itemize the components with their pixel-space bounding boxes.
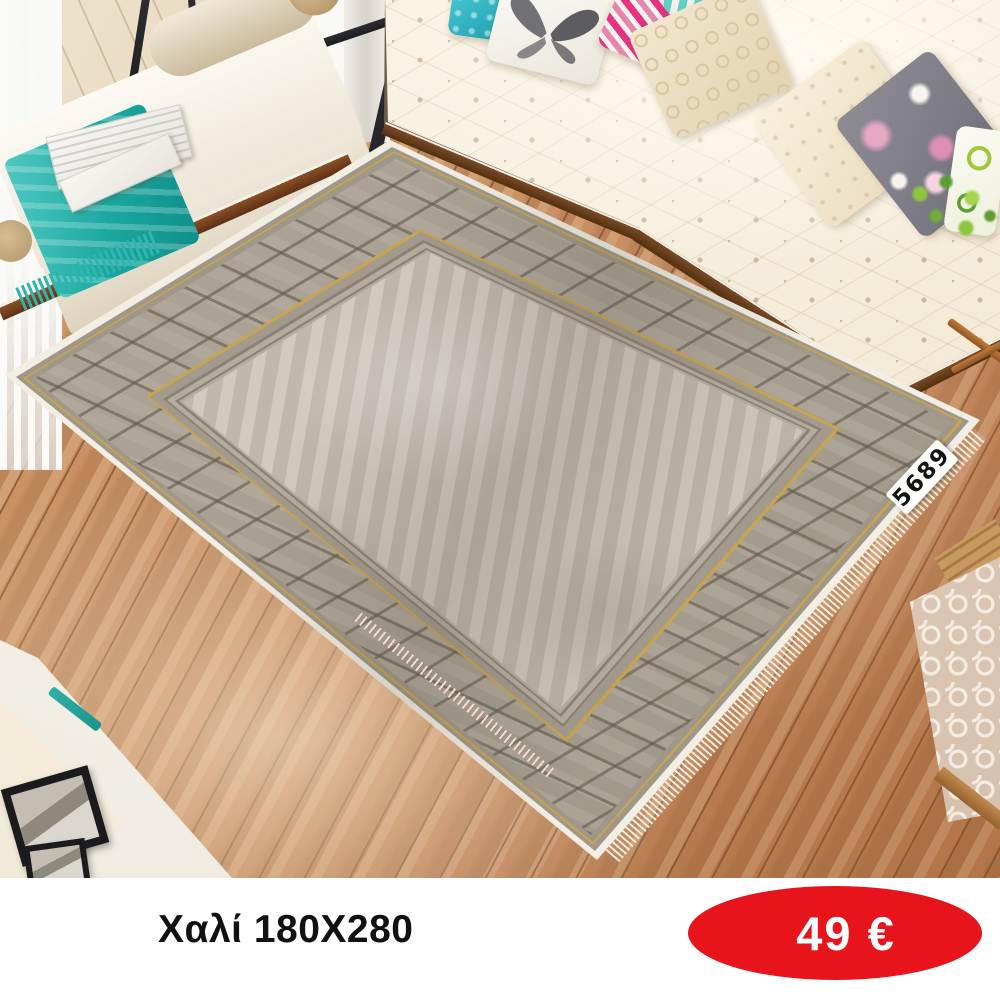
framed-photo bbox=[30, 845, 85, 878]
product-title: Χαλί 180X280 bbox=[158, 908, 414, 952]
caption-bar: Χαλί 180X280 49 € bbox=[0, 878, 1000, 1000]
price-text: 49 € bbox=[774, 906, 895, 961]
plant-sprigs bbox=[902, 168, 1000, 250]
price-badge: 49 € bbox=[688, 886, 982, 980]
product-card: 5689 Χαλί 180X280 49 € bbox=[0, 0, 1000, 1000]
room-photo: 5689 bbox=[0, 0, 1000, 878]
rug-fringe bbox=[354, 613, 555, 779]
